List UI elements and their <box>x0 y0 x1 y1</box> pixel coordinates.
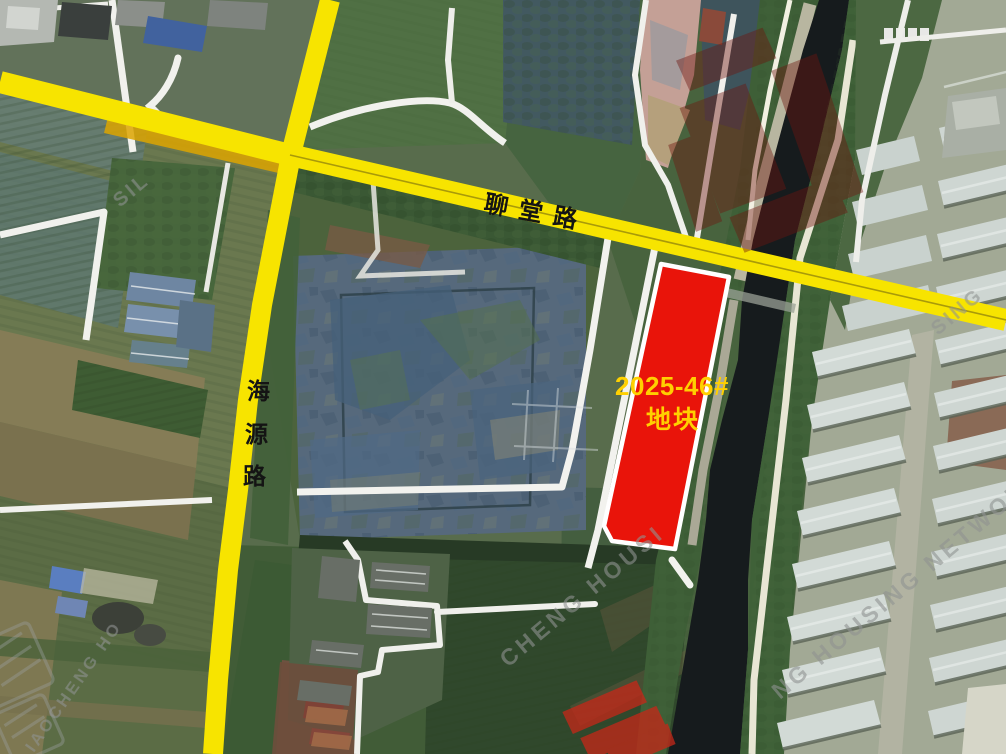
svg-text:2025-46#: 2025-46# <box>615 371 729 401</box>
svg-text:海: 海 <box>247 378 270 404</box>
svg-text:路: 路 <box>243 463 267 489</box>
svg-text:源: 源 <box>245 421 268 447</box>
svg-text:地块: 地块 <box>646 406 700 434</box>
